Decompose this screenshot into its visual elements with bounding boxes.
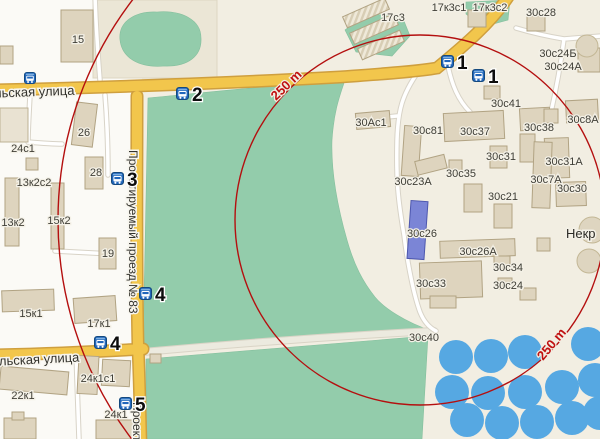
marker-number: 2 xyxy=(192,85,203,106)
building-label: 30с8А xyxy=(567,114,599,126)
marker-number: 3 xyxy=(127,170,138,191)
building-label: 30с28 xyxy=(526,7,556,19)
building-label: 30с26 xyxy=(407,228,437,240)
street-label-top: льская улица xyxy=(0,83,75,101)
building-label: 13к2с2 xyxy=(17,177,52,189)
building-label: 30с24Б xyxy=(539,48,576,60)
building-label: 17к3с1 xyxy=(432,2,467,14)
building-label: 30с41 xyxy=(491,98,521,110)
marker-number: 1 xyxy=(457,53,468,74)
building-label: 30с38 xyxy=(524,122,554,134)
building-label: 19 xyxy=(102,248,114,260)
building-label: 28 xyxy=(90,167,102,179)
building-label: 30с33 xyxy=(416,278,446,290)
building-label: 22к1 xyxy=(11,390,34,402)
building-label: 24к1с1 xyxy=(81,373,116,385)
building-label: 30с24А xyxy=(544,61,582,73)
building-label: 30с31 xyxy=(486,151,516,163)
round-feature xyxy=(576,35,598,57)
building-label: 30с26А xyxy=(459,246,497,258)
building-label: 30с40 xyxy=(409,332,439,344)
bus-stop-icon[interactable] xyxy=(24,72,35,83)
building-label: 26 xyxy=(78,127,90,139)
building-label: 24с1 xyxy=(11,143,35,155)
building-label: 15к2 xyxy=(47,215,70,227)
building-label: 30с24 xyxy=(493,280,523,292)
marker-number: 4 xyxy=(110,334,121,355)
building-label: 15 xyxy=(72,34,84,46)
building-label: 30с35 xyxy=(446,168,476,180)
building-label: 30Ас1 xyxy=(355,117,386,129)
building-label: 30с37 xyxy=(460,126,490,138)
building-label: 17с3 xyxy=(381,12,405,24)
building-label: 30с31А xyxy=(545,156,583,168)
marker-number: 4 xyxy=(155,285,166,306)
building-label: 30с34 xyxy=(493,262,523,274)
building-label: 30с21 xyxy=(488,191,518,203)
building-label: 15к1 xyxy=(19,308,42,320)
marker-number: 1 xyxy=(488,67,499,88)
building-label: 13к2 xyxy=(1,217,24,229)
blue-circles xyxy=(435,327,600,439)
building-label: 17к3с2 xyxy=(473,2,508,14)
building-label: 30с81 xyxy=(413,125,443,137)
map-viewport[interactable]: льская улица ольская улица Проектируемый… xyxy=(0,0,600,439)
district-label: Некр xyxy=(566,226,596,241)
building-label: 17к1 xyxy=(87,318,110,330)
building-label: 30с23А xyxy=(394,176,432,188)
pond-green xyxy=(120,12,201,67)
round-feature xyxy=(577,249,600,273)
map-canvas[interactable]: льская улица ольская улица Проектируемый… xyxy=(0,0,600,439)
building-label: 24к1 xyxy=(104,409,127,421)
marker-number: 5 xyxy=(135,395,146,416)
building-label: 30с30 xyxy=(557,183,587,195)
